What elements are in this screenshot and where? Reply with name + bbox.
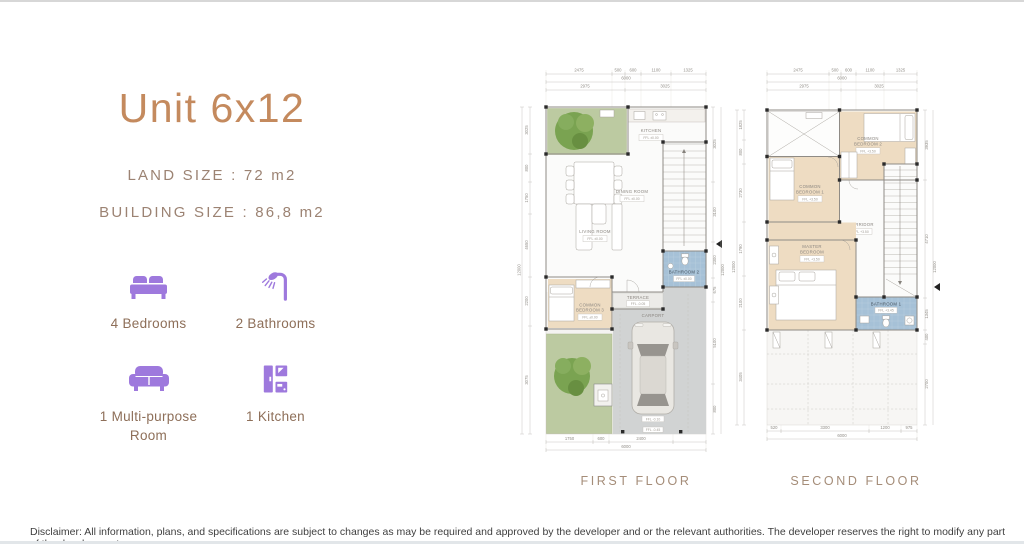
svg-text:3300: 3300 — [820, 425, 830, 430]
room-bathroom2: BATHROOM 2 FFL ±0.00 — [663, 251, 706, 287]
bed-icon — [129, 269, 169, 303]
svg-text:BEDROOM 1: BEDROOM 1 — [796, 189, 824, 194]
feature-label-bedrooms: 4 Bedrooms — [111, 314, 187, 334]
svg-text:FFL ±0.00: FFL ±0.00 — [624, 197, 639, 201]
svg-text:FFL -0.10: FFL -0.10 — [646, 417, 661, 421]
first-floor-title: FIRST FLOOR — [556, 474, 716, 488]
svg-text:2975: 2975 — [799, 84, 809, 89]
svg-text:FFL ±0.00: FFL ±0.00 — [587, 237, 602, 241]
feature-bedrooms: 4 Bedrooms — [88, 269, 209, 334]
svg-text:2200: 2200 — [524, 296, 529, 306]
second-floor-plan: 2475 500 600 1100 1325 6000 2975 3025 — [728, 54, 960, 466]
svg-text:COMMON: COMMON — [857, 136, 879, 141]
room-master: MASTER BEDROOM FFL +3.50 — [769, 223, 857, 330]
svg-text:3025: 3025 — [524, 125, 529, 135]
first-floor-plan: 2475 500 600 1100 1325 6000 2975 3025 — [516, 54, 738, 466]
car-top-view — [628, 322, 678, 414]
svg-text:600: 600 — [598, 436, 606, 441]
dims-left: 1825 800 2730 1790 2100 3405 12000 — [731, 110, 746, 425]
land-size-text: LAND SIZE : 72 m2 — [88, 167, 336, 184]
feature-multipurpose: 1 Multi-purpose Room — [88, 362, 209, 446]
svg-text:KITCHEN: KITCHEN — [641, 128, 662, 133]
svg-text:FFL -0.45: FFL -0.45 — [646, 428, 661, 432]
svg-text:2100: 2100 — [738, 298, 743, 308]
unit-title: Unit 6x12 — [88, 86, 336, 131]
svg-text:800: 800 — [712, 405, 717, 413]
svg-text:500: 500 — [615, 68, 623, 73]
svg-text:400: 400 — [924, 333, 929, 341]
svg-text:6000: 6000 — [837, 433, 847, 438]
svg-text:3025: 3025 — [712, 139, 717, 149]
svg-text:CARPORT: CARPORT — [642, 313, 665, 318]
svg-text:12000: 12000 — [932, 261, 937, 273]
svg-text:1100: 1100 — [865, 68, 875, 73]
svg-text:2730: 2730 — [738, 188, 743, 198]
svg-text:FFL -0.05: FFL -0.05 — [631, 302, 646, 306]
svg-text:1100: 1100 — [651, 68, 661, 73]
size-specs: LAND SIZE : 72 m2 BUILDING SIZE : 86,8 m… — [88, 167, 336, 221]
svg-text:FFL +3.50: FFL +3.50 — [860, 149, 876, 153]
svg-text:1825: 1825 — [738, 120, 743, 130]
unit-summary-panel: Unit 6x12 LAND SIZE : 72 m2 BUILDING SIZ… — [88, 86, 336, 446]
feature-grid: 4 Bedrooms 2 Bathrooms — [88, 269, 336, 446]
svg-text:3935: 3935 — [924, 140, 929, 150]
dims-top: 2475 500 600 1100 1325 6000 2975 3025 — [767, 68, 917, 111]
svg-text:3075: 3075 — [524, 375, 529, 385]
svg-text:500: 500 — [832, 68, 840, 73]
svg-text:2400: 2400 — [636, 436, 646, 441]
svg-text:800: 800 — [738, 148, 743, 156]
svg-text:TERRACE: TERRACE — [627, 295, 649, 300]
svg-text:BEDROOM 2: BEDROOM 2 — [854, 141, 882, 146]
svg-text:BEDROOM 3: BEDROOM 3 — [576, 308, 604, 313]
svg-text:12000: 12000 — [720, 264, 725, 276]
shower-icon — [261, 269, 291, 303]
svg-text:4710: 4710 — [924, 234, 929, 244]
svg-text:FFL ±0.00: FFL ±0.00 — [676, 277, 691, 281]
svg-text:4650: 4650 — [524, 240, 529, 250]
svg-text:1325: 1325 — [896, 68, 906, 73]
unit-brochure-page: Unit 6x12 LAND SIZE : 72 m2 BUILDING SIZ… — [0, 0, 1024, 544]
svg-text:3025: 3025 — [874, 84, 884, 89]
svg-text:2475: 2475 — [793, 68, 803, 73]
garden-back — [547, 334, 613, 434]
svg-text:3100: 3100 — [712, 207, 717, 217]
svg-text:BEDROOM: BEDROOM — [800, 249, 824, 254]
terrace: TERRACE FFL -0.05 — [613, 293, 663, 308]
room-bathroom1: BATHROOM 1 FFL +3.45 — [856, 297, 917, 330]
svg-text:3025: 3025 — [660, 84, 670, 89]
void-room — [769, 112, 840, 157]
svg-text:675: 675 — [712, 286, 717, 294]
feature-label-multipurpose: 1 Multi-purpose Room — [88, 407, 209, 446]
svg-text:520: 520 — [771, 425, 779, 430]
svg-text:5100: 5100 — [712, 338, 717, 348]
feature-label-bathrooms: 2 Bathrooms — [236, 314, 316, 334]
svg-text:975: 975 — [906, 425, 914, 430]
svg-text:12000: 12000 — [517, 264, 522, 276]
kitchen-icon — [262, 362, 289, 396]
svg-text:2975: 2975 — [580, 84, 590, 89]
svg-text:1750: 1750 — [524, 193, 529, 203]
svg-text:FFL +3.50: FFL +3.50 — [802, 197, 818, 201]
svg-text:1345: 1345 — [924, 309, 929, 319]
dims-right: 3025 3100 2300 675 5100 800 12000 — [711, 107, 725, 434]
svg-text:12000: 12000 — [731, 261, 736, 273]
entry-arrow-marker — [934, 283, 940, 291]
dims-left: 3025 800 1750 4650 2200 3075 12000 — [517, 107, 533, 434]
svg-text:600: 600 — [630, 68, 638, 73]
svg-text:FFL +3.45: FFL +3.45 — [878, 309, 894, 313]
svg-text:6000: 6000 — [621, 76, 631, 81]
svg-text:6000: 6000 — [837, 76, 847, 81]
svg-text:1790: 1790 — [738, 244, 743, 254]
feature-bathrooms: 2 Bathrooms — [215, 269, 336, 334]
room-bedroom3: COMMON BEDROOM 3 FFL ±0.00 — [548, 279, 612, 328]
sofa-icon — [129, 362, 169, 396]
svg-text:MASTER: MASTER — [802, 244, 821, 249]
building-size-text: BUILDING SIZE : 86,8 m2 — [88, 204, 336, 221]
svg-text:1200: 1200 — [880, 425, 890, 430]
dims-bottom: 520 3300 1200 975 6000 — [767, 425, 917, 441]
svg-text:FFL ±0.00: FFL ±0.00 — [582, 316, 597, 320]
svg-text:DINING ROOM: DINING ROOM — [616, 189, 649, 194]
svg-text:3405: 3405 — [738, 372, 743, 382]
svg-text:BATHROOM 2: BATHROOM 2 — [669, 270, 700, 275]
stairs — [884, 164, 917, 297]
stairs — [663, 144, 706, 251]
svg-text:800: 800 — [524, 164, 529, 172]
svg-text:FFL ±0.00: FFL ±0.00 — [643, 136, 658, 140]
svg-text:2475: 2475 — [574, 68, 584, 73]
svg-text:COMMON: COMMON — [799, 184, 821, 189]
dims-bottom: 1750 600 2400 6000 — [546, 434, 706, 452]
svg-text:1750: 1750 — [565, 436, 575, 441]
svg-text:FFL +3.50: FFL +3.50 — [804, 257, 820, 261]
feature-label-kitchen: 1 Kitchen — [246, 407, 305, 427]
svg-text:6000: 6000 — [621, 444, 631, 449]
svg-text:2300: 2300 — [712, 255, 717, 265]
feature-kitchen: 1 Kitchen — [215, 362, 336, 446]
dims-top: 2475 500 600 1100 1325 6000 2975 3025 — [546, 68, 706, 93]
svg-text:BATHROOM 1: BATHROOM 1 — [871, 302, 902, 307]
svg-text:1325: 1325 — [683, 68, 693, 73]
second-floor-title: SECOND FLOOR — [776, 474, 936, 488]
svg-text:600: 600 — [845, 68, 853, 73]
garden-front — [548, 109, 627, 155]
dims-right: 3935 4710 1345 400 2700 12000 — [923, 110, 937, 425]
svg-text:2700: 2700 — [924, 379, 929, 389]
svg-text:LIVING ROOM: LIVING ROOM — [579, 229, 611, 234]
top-divider — [0, 0, 1024, 2]
